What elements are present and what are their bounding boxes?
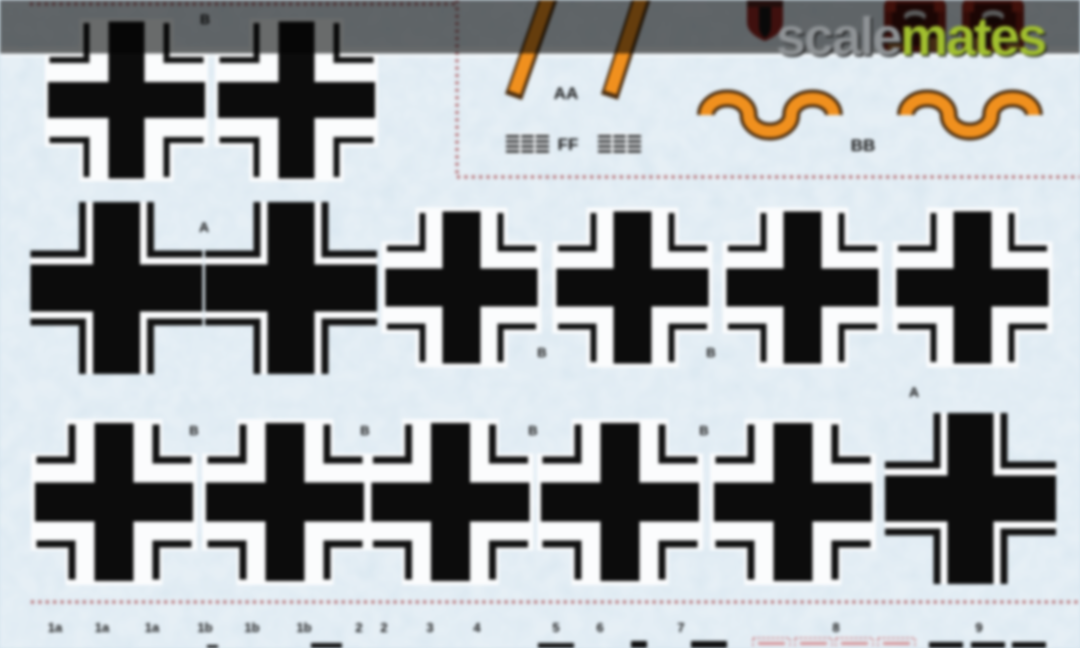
svg-text:B: B — [528, 423, 537, 438]
svg-text:B: B — [706, 345, 715, 360]
svg-text:1a: 1a — [95, 620, 110, 635]
svg-text:B: B — [360, 423, 369, 438]
svg-text:2: 2 — [355, 620, 362, 635]
svg-text:A: A — [909, 384, 919, 400]
svg-text:B: B — [537, 345, 546, 360]
svg-text:8: 8 — [832, 620, 839, 635]
svg-text:1a: 1a — [145, 620, 160, 635]
svg-text:1b: 1b — [197, 620, 212, 635]
svg-text:B: B — [699, 423, 708, 438]
svg-text:1b: 1b — [244, 620, 259, 635]
svg-text:3: 3 — [426, 620, 433, 635]
svg-text:1b: 1b — [296, 620, 311, 635]
svg-text:A: A — [199, 219, 209, 235]
svg-text:9: 9 — [975, 620, 982, 635]
svg-text:FF: FF — [558, 135, 579, 154]
svg-text:AA: AA — [554, 84, 579, 103]
svg-text:4: 4 — [473, 620, 481, 635]
svg-text:7: 7 — [677, 620, 684, 635]
svg-text:1a: 1a — [48, 620, 63, 635]
svg-text:BB: BB — [851, 136, 876, 155]
svg-text:6: 6 — [596, 620, 603, 635]
svg-text:B: B — [189, 423, 198, 438]
svg-text:2: 2 — [380, 620, 387, 635]
svg-text:5: 5 — [552, 620, 559, 635]
svg-text:scalemates: scalemates — [776, 7, 1045, 67]
